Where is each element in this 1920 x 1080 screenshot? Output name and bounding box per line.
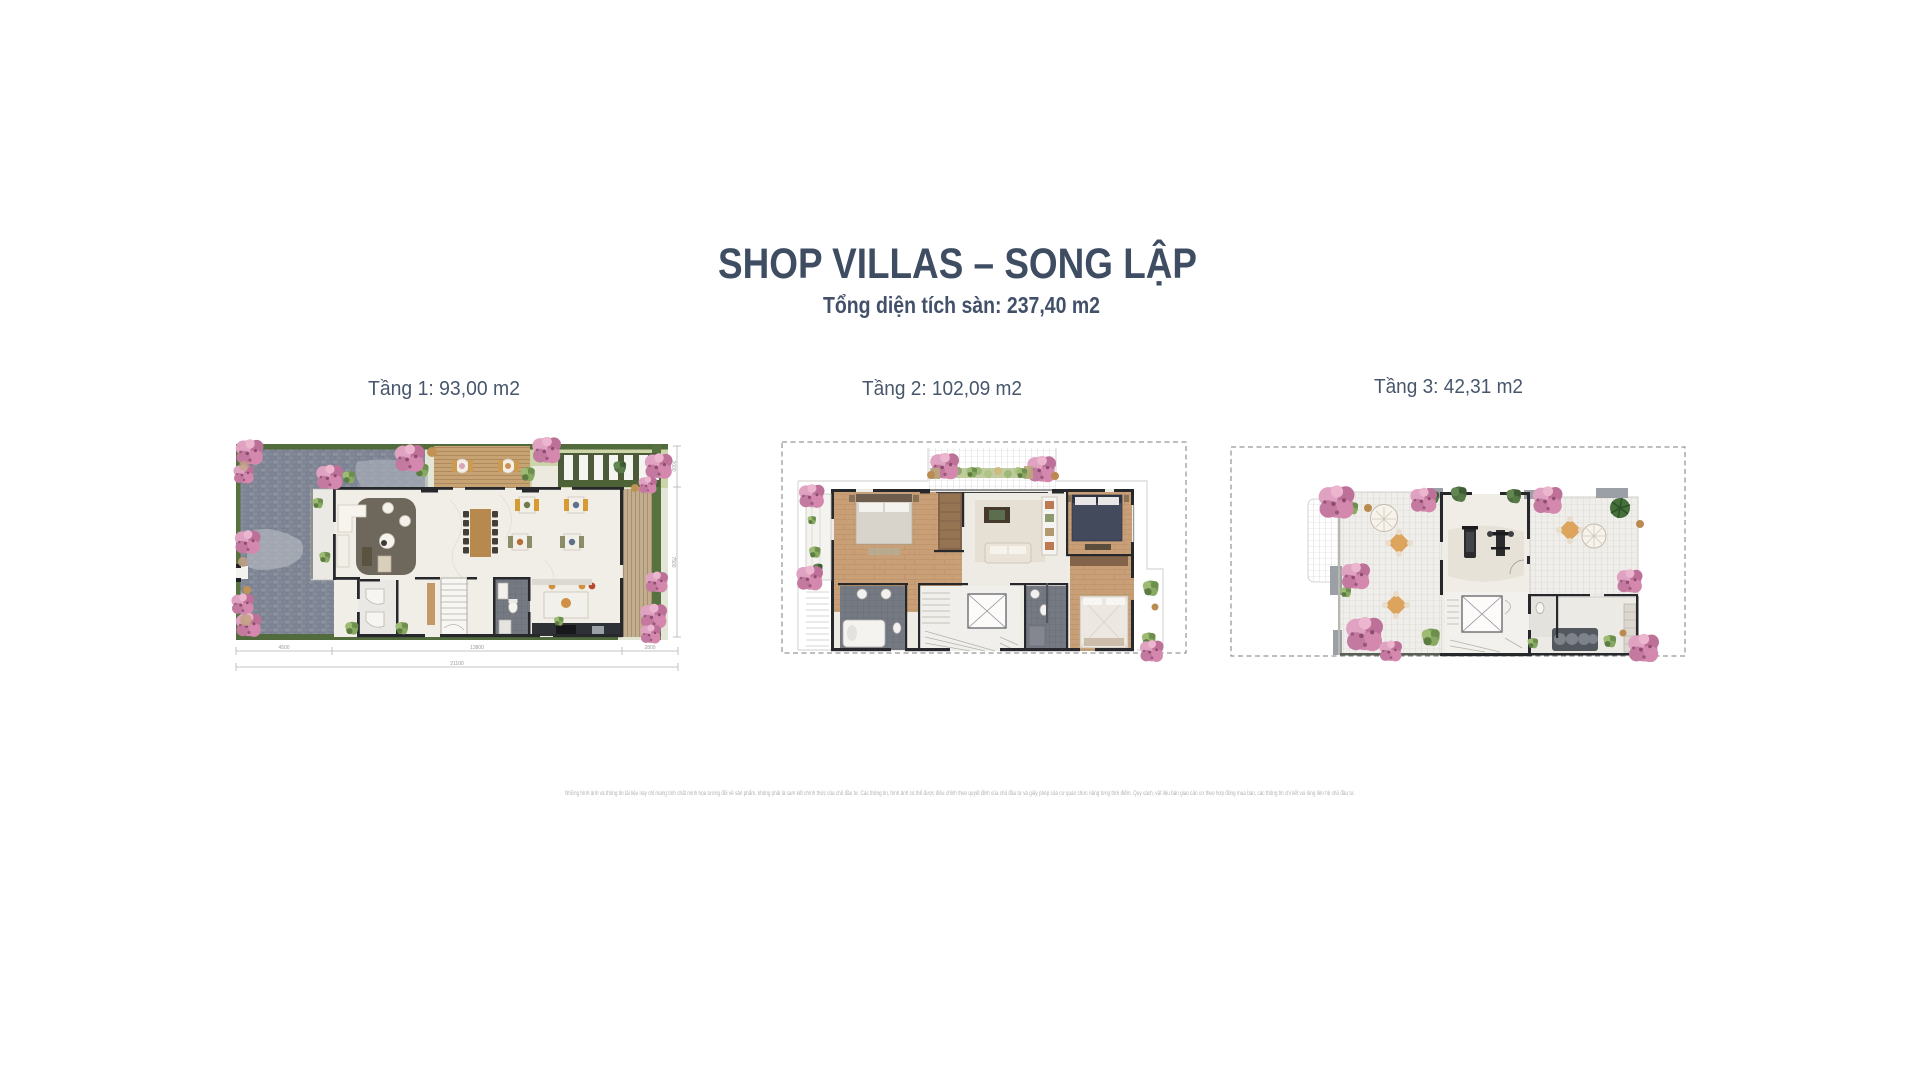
svg-text:Những hình ảnh và thông tin tà: Những hình ảnh và thông tin tài liệu này… <box>565 788 1355 797</box>
